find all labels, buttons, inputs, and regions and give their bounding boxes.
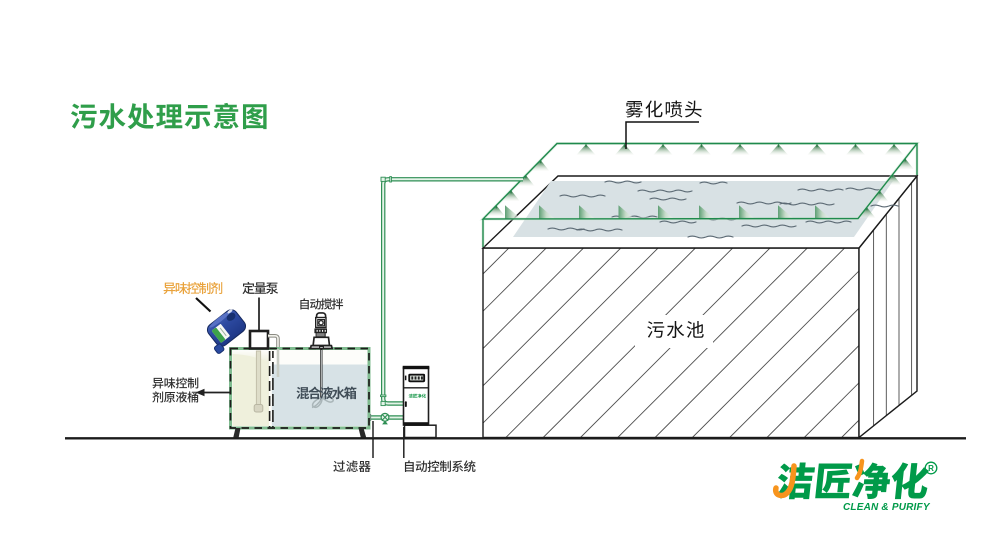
- svg-text:R: R: [928, 464, 934, 473]
- svg-text:CLEAN & PURIFY: CLEAN & PURIFY: [843, 502, 931, 513]
